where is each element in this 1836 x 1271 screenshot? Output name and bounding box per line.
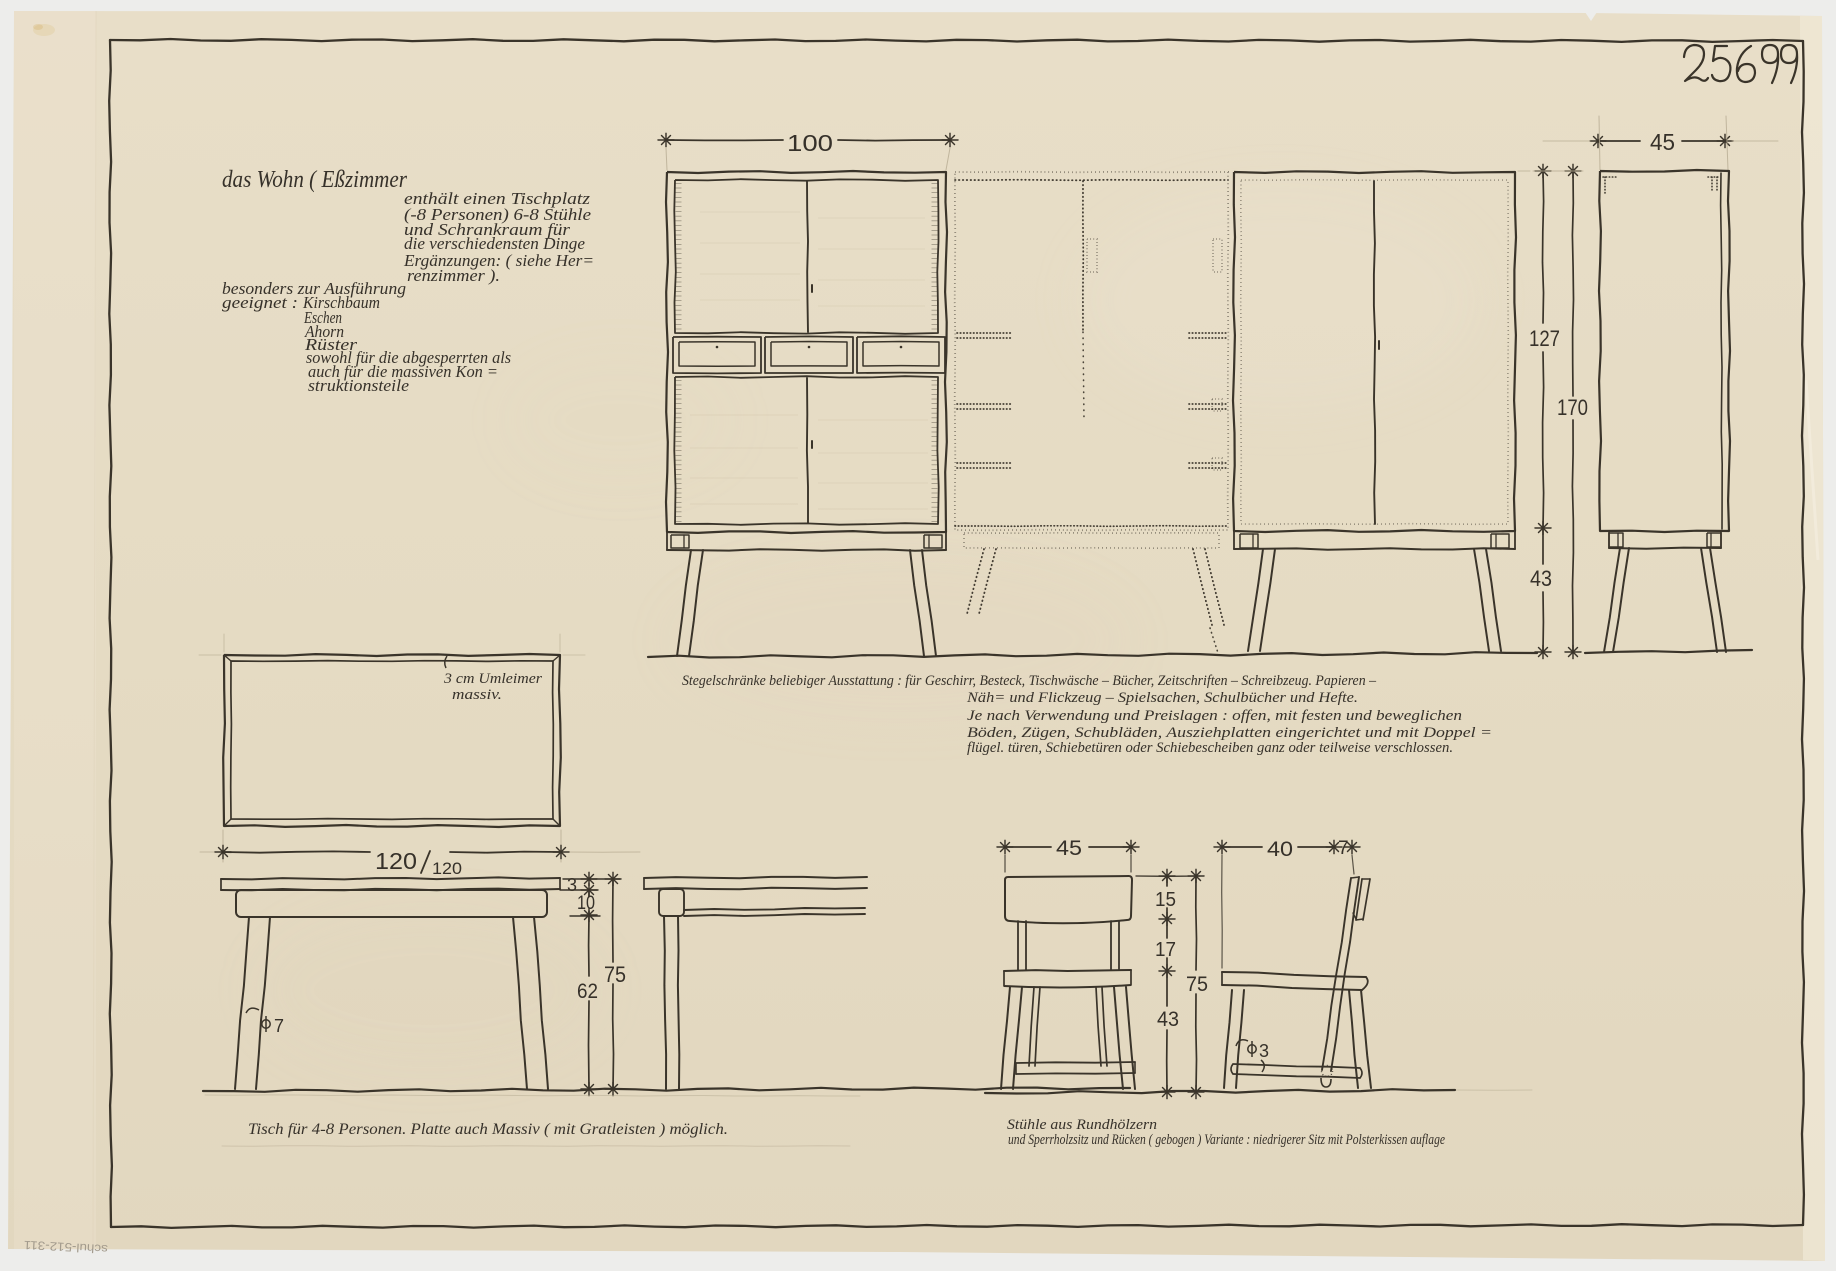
svg-text:100: 100 (787, 130, 833, 156)
svg-text:43: 43 (1157, 1008, 1179, 1031)
svg-text:7: 7 (274, 1016, 284, 1036)
svg-text:45: 45 (1650, 129, 1675, 155)
svg-text:43: 43 (1530, 566, 1552, 591)
svg-text:Je nach Verwendung und Preisla: Je nach Verwendung und Preislagen : offe… (967, 708, 1462, 724)
svg-text:struktionsteile: struktionsteile (308, 376, 409, 395)
svg-text:17: 17 (1155, 939, 1176, 961)
svg-text:75: 75 (1186, 973, 1208, 996)
svg-text:das Wohn ( Eßzimmer: das Wohn ( Eßzimmer (222, 167, 408, 193)
svg-text:3 cm Umleimer: 3 cm Umleimer (443, 671, 542, 687)
svg-text:62: 62 (577, 980, 598, 1003)
svg-text:7: 7 (1338, 838, 1349, 859)
svg-text:Näh= und Flickzeug – Spielsach: Näh= und Flickzeug – Spielsachen, Schulb… (966, 690, 1358, 706)
svg-text:127: 127 (1529, 326, 1560, 351)
svg-text:45: 45 (1056, 837, 1082, 860)
svg-text:40: 40 (1267, 838, 1293, 861)
svg-text:Böden, Zügen, Schubläden, Ausz: Böden, Zügen, Schubläden, Ausziehplatten… (967, 725, 1492, 741)
svg-text:Tisch für 4-8 Personen. Platt: Tisch für 4-8 Personen. Platte auch Mass… (248, 1121, 728, 1138)
svg-text:75: 75 (604, 962, 626, 987)
svg-text:massiv.: massiv. (452, 687, 502, 703)
svg-text:120: 120 (432, 859, 462, 878)
svg-text:3: 3 (1259, 1041, 1269, 1061)
svg-text:Stühle aus Rundhölzern: Stühle aus Rundhölzern (1007, 1117, 1157, 1133)
svg-text:Stegelschränke beliebiger Auss: Stegelschränke beliebiger Ausstattung : … (682, 673, 1376, 689)
svg-text:und Sperrholzsitz und Rücken (: und Sperrholzsitz und Rücken ( gebogen )… (1008, 1132, 1445, 1148)
svg-text:3: 3 (567, 875, 577, 895)
svg-text:flügel. türen, Schiebetüren o: flügel. türen, Schiebetüren oder Schiebe… (967, 740, 1453, 756)
svg-text:geeignet :: geeignet : (222, 293, 298, 312)
svg-text:10: 10 (577, 893, 595, 914)
svg-text:120: 120 (375, 848, 417, 874)
svg-text:170: 170 (1557, 395, 1588, 420)
svg-text:renzimmer ).: renzimmer ). (407, 266, 500, 285)
svg-text:15: 15 (1155, 889, 1176, 911)
